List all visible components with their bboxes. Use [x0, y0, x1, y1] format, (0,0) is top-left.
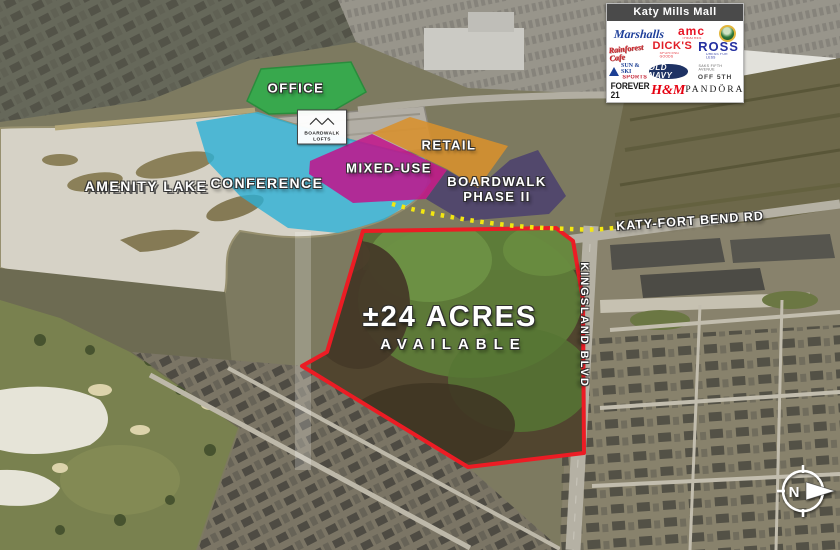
building-roofline-icon — [308, 117, 336, 126]
forever-21-logo: FOREVER 21 — [611, 82, 650, 100]
boardwalk-lofts-line1: BOARDWALK — [304, 131, 341, 136]
tenant-logo-row: Rainforest Cafe DICK'S SPORTING GOODS RO… — [609, 43, 741, 62]
zone-label-retail: RETAIL — [422, 138, 477, 153]
zone-label-boardwalk-phase-2: BOARDWALK PHASE II — [447, 174, 546, 204]
zone-label-conference: CONFERENCE — [210, 175, 323, 191]
parcel-highlight-strip — [295, 232, 311, 470]
acreage-label: ±24 ACRES AVAILABLE — [363, 301, 538, 353]
compass-north-label: N — [789, 484, 800, 501]
boardwalk-lofts-line2: LOFTS — [304, 137, 341, 142]
old-navy-logo: OLD NAVY — [649, 64, 689, 79]
tenant-box-title: Katy Mills Mall — [607, 4, 743, 21]
mountain-icon — [609, 67, 619, 76]
saks-off-5th-logo: SAKS FIFTH AVENUE OFF 5TH — [688, 62, 741, 81]
tenant-logo-row: FOREVER 21 H&M PANDÖRA — [609, 81, 741, 100]
katy-mills-mall-tenant-box: Katy Mills Mall Marshalls amc THEATRES R… — [606, 3, 744, 103]
acreage-availability: AVAILABLE — [363, 336, 538, 353]
pandora-logo: PANDÖRA — [685, 86, 744, 96]
h-and-m-logo: H&M — [651, 84, 685, 98]
acreage-amount: ±24 ACRES — [363, 301, 538, 334]
zone-label-mixed-use: MIXED-USE — [346, 161, 432, 176]
zone-label-office: OFFICE — [268, 81, 325, 96]
amenity-lake-label: AMENITY LAKE — [85, 178, 208, 194]
dicks-sporting-goods-logo: DICK'S SPORTING GOODS — [649, 41, 696, 64]
aerial-site-map: OFFICE CONFERENCE AMENITY LAKE MIXED-USE… — [0, 0, 840, 550]
rainforest-cafe-logo: Rainforest Cafe — [608, 42, 649, 62]
compass-arrow-icon — [806, 482, 835, 500]
tenant-logo-grid: Marshalls amc THEATRES Rainforest Cafe D… — [607, 21, 743, 102]
compass-north-indicator: N — [760, 458, 840, 524]
boardwalk-phase-2-line2: PHASE II — [447, 189, 546, 204]
marshalls-logo: Marshalls — [613, 28, 664, 40]
tenant-logo-row: SUN & SKI SPORTS OLD NAVY SAKS FIFTH AVE… — [609, 62, 741, 81]
sun-and-ski-sports-logo: SUN & SKI SPORTS — [609, 63, 649, 81]
boardwalk-lofts-badge: BOARDWALK LOFTS — [297, 110, 347, 145]
boardwalk-phase-2-line1: BOARDWALK — [447, 174, 546, 189]
kingsland-blvd-label: KINGSLAND BLVD — [578, 262, 590, 388]
